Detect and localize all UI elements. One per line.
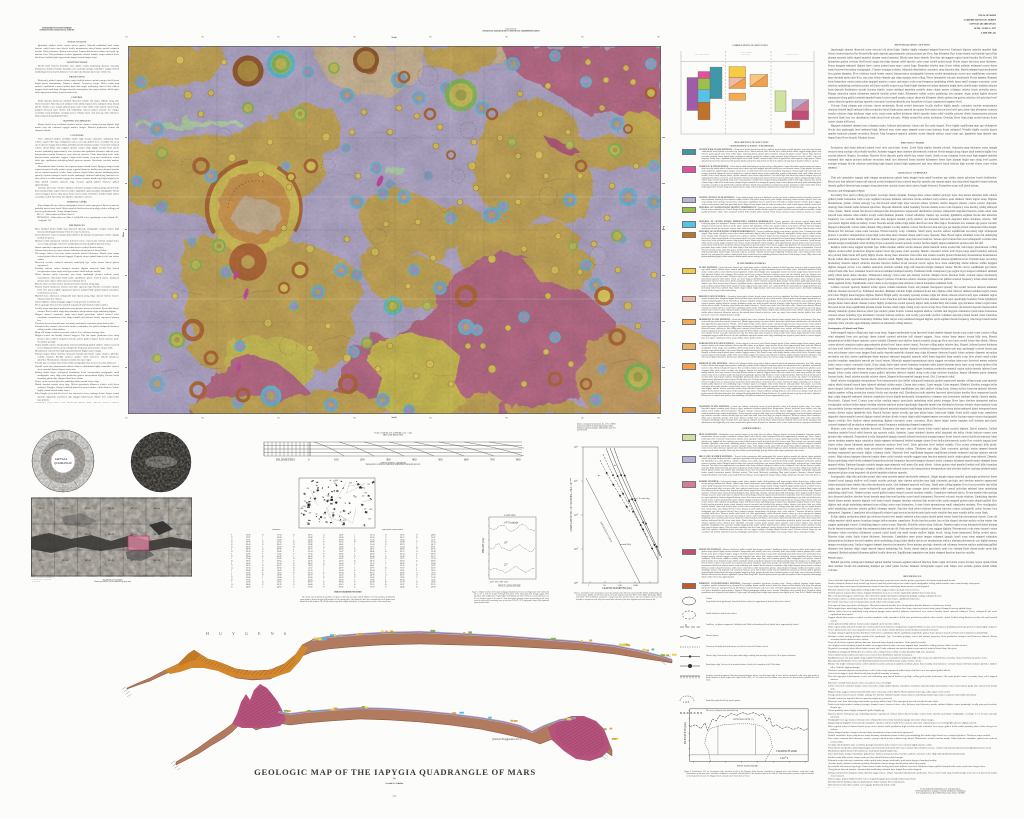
svg-text:MC-15: MC-15: [176, 508, 183, 510]
svg-text:CUMULATIVE NO. OF CRATERS ≥ DI: CUMULATIVE NO. OF CRATERS ≥ DIA./106 km2: [570, 477, 573, 532]
svg-text:833: 833: [343, 520, 346, 522]
svg-text:H U Y G E N S: H U Y G E N S: [206, 631, 291, 636]
svg-text:WEST LONGITUDE: WEST LONGITUDE: [498, 585, 521, 588]
svg-text:m and hilly: m and hilly: [620, 543, 632, 546]
svg-text:811: 811: [324, 517, 327, 519]
svg-text:22°: 22°: [504, 564, 508, 567]
svg-text:284: 284: [354, 497, 357, 499]
svg-text:IAPYGIA: IAPYGIA: [149, 460, 161, 463]
svg-text:642: 642: [327, 495, 330, 497]
svg-text:(MC-21): (MC-21): [161, 463, 170, 466]
svg-text:MC-25: MC-25: [85, 560, 92, 562]
svg-text:316: 316: [315, 513, 318, 515]
svg-text:WEST LONGITUDE: WEST LONGITUDE: [737, 765, 759, 768]
svg-text:MC-18: MC-18: [85, 534, 92, 536]
svg-text:447: 447: [306, 503, 309, 505]
svg-text:764: 764: [339, 498, 342, 500]
svg-text:MC-10: MC-10: [62, 508, 69, 510]
svg-text:400: 400: [412, 458, 417, 462]
svg-text:517: 517: [303, 514, 306, 516]
svg-text:hf: hf: [614, 464, 616, 467]
svg-text:169: 169: [328, 500, 331, 502]
svg-text:618: 618: [303, 506, 306, 508]
svg-text:MC-22: MC-22: [176, 534, 182, 536]
svg-text:238: 238: [368, 518, 371, 520]
svg-text:500: 500: [438, 458, 443, 462]
svg-text:300: 300: [386, 458, 391, 462]
svg-text:pc: pc: [598, 474, 600, 477]
svg-text:14° S latitude: 14° S latitude: [504, 522, 519, 525]
svg-text:MC-12: MC-12: [108, 508, 114, 510]
svg-text:CRATER FLOOR: CRATER FLOOR: [776, 749, 797, 753]
svg-text:HUYGENS MTS (?): HUYGENS MTS (?): [733, 718, 754, 721]
svg-text:1000: 1000: [633, 584, 639, 587]
svg-text:MC-13: MC-13: [131, 508, 138, 510]
svg-text:MC-20: MC-20: [131, 534, 138, 536]
svg-text:10-1: 10-1: [574, 480, 578, 483]
svg-text:518: 518: [323, 514, 326, 516]
svg-text:(Vertical Exaggeration 25:1): (Vertical Exaggeration 25:1): [492, 738, 522, 741]
svg-text:571: 571: [335, 502, 338, 504]
svg-text:MC-24: MC-24: [62, 560, 69, 562]
svg-text:600: 600: [464, 458, 469, 462]
svg-text:926: 926: [307, 523, 310, 525]
svg-text:10-2: 10-2: [574, 514, 578, 517]
svg-text:QUADRANGLE: QUADRANGLE: [54, 462, 72, 465]
svg-text:18°: 18°: [504, 542, 508, 545]
svg-text:MC-21: MC-21: [154, 534, 160, 536]
svg-text:200: 200: [360, 458, 365, 462]
svg-text:304: 304: [315, 482, 318, 484]
svg-text:MC-9: MC-9: [39, 508, 44, 510]
svg-text:800: 800: [516, 458, 521, 462]
svg-text:HEIGHT (km): HEIGHT (km): [482, 538, 485, 553]
svg-text:KILOMETERS: KILOMETERS: [276, 458, 295, 462]
svg-text:MC-28: MC-28: [154, 560, 161, 562]
svg-text:100: 100: [334, 458, 339, 462]
svg-text:339: 339: [309, 512, 312, 514]
svg-text:CRATER DIAMETER (km): CRATER DIAMETER (km): [602, 587, 632, 590]
svg-text:264: 264: [307, 488, 310, 490]
svg-text:MC-29: MC-29: [176, 560, 182, 562]
svg-text:390: 390: [367, 484, 370, 486]
svg-text:406: 406: [369, 509, 372, 511]
svg-text:14.0° S: 14.0° S: [780, 756, 789, 760]
svg-text:MC-16: MC-16: [39, 534, 46, 536]
svg-text:IAPYGIA: IAPYGIA: [55, 457, 68, 461]
svg-text:300° 295° 290° 285°: 300° 295° 290° 285°: [490, 581, 508, 584]
svg-text:400: 400: [362, 495, 365, 497]
svg-text:LATITUDE: LATITUDE: [504, 514, 516, 517]
svg-text:1 2 3: 1 2 3: [683, 700, 690, 704]
svg-text:362: 362: [333, 481, 336, 483]
svg-text:MC-26: MC-26: [108, 560, 115, 562]
svg-text:ELEVATION (km): ELEVATION (km): [683, 722, 687, 743]
svg-text:MC-27: MC-27: [131, 560, 138, 562]
svg-text:10-4: 10-4: [574, 582, 578, 585]
svg-text:959: 959: [350, 483, 353, 485]
svg-text:MC-14: MC-14: [154, 508, 161, 510]
svg-text:568: 568: [335, 480, 338, 482]
svg-text:MC-23: MC-23: [39, 560, 46, 562]
svg-text:MC-17: MC-17: [62, 534, 69, 536]
svg-text:10-0: 10-0: [574, 446, 578, 449]
svg-text:0: 0: [308, 458, 310, 462]
svg-text:665: 665: [368, 496, 371, 498]
svg-text:700: 700: [490, 458, 495, 462]
svg-text:151: 151: [334, 483, 337, 485]
svg-text:102: 102: [343, 511, 346, 513]
svg-text:596: 596: [332, 512, 335, 514]
svg-text:MC-11: MC-11: [85, 508, 91, 510]
svg-text:1: 1: [588, 584, 590, 587]
svg-text:SATURATION CURVE: SATURATION CURVE: [599, 521, 613, 543]
svg-text:609: 609: [364, 493, 367, 495]
svg-text:MC-19: MC-19: [108, 534, 114, 536]
svg-text:hc and chp: hc and chp: [639, 497, 650, 500]
svg-text:10-3: 10-3: [574, 548, 578, 551]
svg-text:130: 130: [364, 508, 367, 510]
